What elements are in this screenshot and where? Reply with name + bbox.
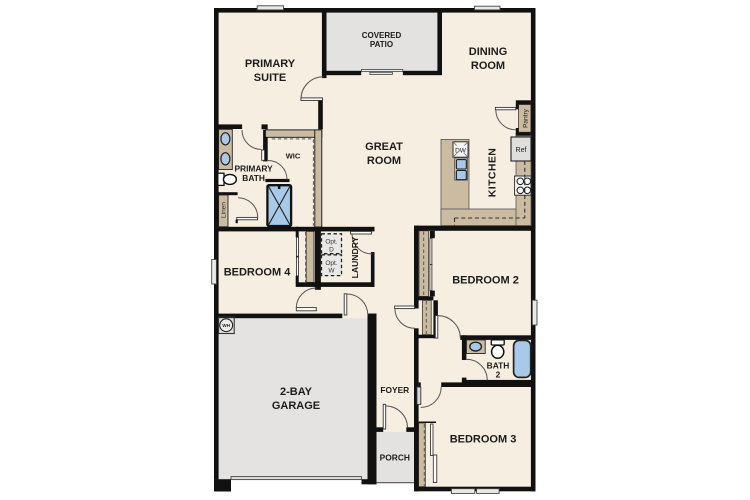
svg-text:WH: WH [222, 323, 230, 328]
svg-text:BEDROOM 4: BEDROOM 4 [224, 266, 292, 278]
svg-text:DW: DW [455, 147, 467, 154]
svg-text:BEDROOM 2: BEDROOM 2 [452, 275, 519, 287]
svg-text:SUITE: SUITE [254, 72, 286, 84]
svg-text:LAUNDRY: LAUNDRY [350, 236, 360, 278]
svg-text:FOYER: FOYER [380, 385, 409, 395]
svg-text:ROOM: ROOM [471, 60, 505, 72]
svg-text:Opt.: Opt. [325, 260, 337, 267]
svg-text:2-BAY: 2-BAY [280, 386, 313, 398]
svg-text:KITCHEN: KITCHEN [487, 148, 499, 197]
svg-text:Opt.: Opt. [325, 239, 337, 246]
svg-text:Linen: Linen [220, 202, 227, 218]
svg-text:PORCH: PORCH [380, 453, 410, 463]
svg-text:W: W [328, 268, 335, 275]
svg-text:ROOM: ROOM [367, 155, 401, 167]
svg-text:BATH: BATH [242, 173, 265, 183]
svg-text:COVERED: COVERED [362, 31, 402, 40]
svg-text:PRIMARY: PRIMARY [245, 58, 296, 70]
svg-text:D: D [329, 246, 334, 253]
svg-text:GARAGE: GARAGE [272, 400, 320, 412]
svg-text:2: 2 [496, 370, 501, 380]
svg-text:PATIO: PATIO [370, 40, 393, 49]
svg-text:GREAT: GREAT [365, 141, 403, 153]
svg-text:PRIMARY: PRIMARY [234, 164, 273, 174]
svg-text:DINING: DINING [469, 46, 508, 58]
svg-text:BEDROOM 3: BEDROOM 3 [450, 434, 517, 446]
svg-text:Pantry: Pantry [522, 108, 529, 128]
svg-text:WIC: WIC [286, 152, 301, 161]
svg-text:Ref: Ref [516, 147, 527, 154]
